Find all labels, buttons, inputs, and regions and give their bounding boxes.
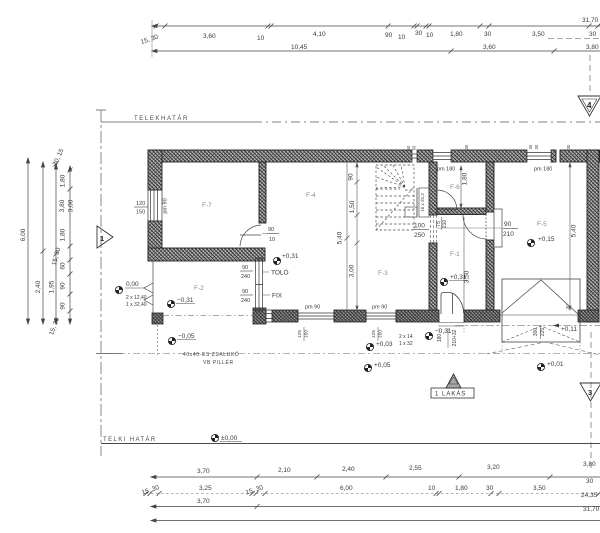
svg-text:1,80: 1,80 <box>60 228 67 241</box>
svg-text:240: 240 <box>241 298 250 304</box>
svg-text:90: 90 <box>348 173 355 181</box>
svg-text:30: 30 <box>484 31 492 38</box>
svg-text:TELEKHATÁR: TELEKHATÁR <box>134 115 189 122</box>
svg-text:±0,00: ±0,00 <box>221 435 238 442</box>
svg-text:1,50: 1,50 <box>349 200 356 213</box>
svg-text:90: 90 <box>60 302 67 310</box>
svg-text:210: 210 <box>503 231 514 238</box>
svg-text:24,35: 24,35 <box>581 492 598 499</box>
svg-text:F-3: F-3 <box>378 270 388 277</box>
svg-text:300: 300 <box>533 328 539 337</box>
svg-text:30: 30 <box>586 478 594 485</box>
svg-text:1,80: 1,80 <box>450 31 463 38</box>
svg-text:1 LAKÁS: 1 LAKÁS <box>435 391 466 398</box>
svg-text:10,45: 10,45 <box>291 44 308 51</box>
svg-text:+0,05: +0,05 <box>374 362 391 369</box>
svg-text:16 x 25,3: 16 x 25,3 <box>420 193 425 212</box>
svg-text:120: 120 <box>136 201 145 207</box>
svg-text:100: 100 <box>414 223 425 230</box>
svg-text:pm 180: pm 180 <box>534 167 552 173</box>
svg-text:125: 125 <box>297 330 303 338</box>
svg-text:2 x 12,40: 2 x 12,40 <box>126 295 147 301</box>
svg-text:4,10: 4,10 <box>313 31 326 38</box>
svg-text:FIX: FIX <box>272 293 283 300</box>
svg-text:90: 90 <box>268 227 274 233</box>
svg-text:VB PILLÉR: VB PILLÉR <box>203 359 234 366</box>
svg-text:6,00: 6,00 <box>340 485 353 492</box>
svg-text:10: 10 <box>269 237 275 243</box>
svg-text:pm 90: pm 90 <box>163 198 169 213</box>
svg-text:F-4: F-4 <box>306 192 316 199</box>
svg-text:1 x 32,40: 1 x 32,40 <box>126 302 147 308</box>
svg-text:40x40-ES ZSALUKŐ: 40x40-ES ZSALUKŐ <box>183 351 239 358</box>
svg-text:90: 90 <box>385 32 393 39</box>
svg-text:3,80: 3,80 <box>583 461 596 468</box>
svg-text:−0,31: −0,31 <box>177 297 194 304</box>
svg-text:10: 10 <box>426 32 434 39</box>
svg-text:+0,31: +0,31 <box>282 253 299 260</box>
svg-text:2,40: 2,40 <box>342 466 355 473</box>
svg-text:10: 10 <box>398 34 406 41</box>
svg-text:1,80: 1,80 <box>60 174 67 187</box>
svg-text:30: 30 <box>566 144 571 149</box>
svg-text:6,00: 6,00 <box>20 228 27 241</box>
svg-text:1 x 32: 1 x 32 <box>399 341 413 347</box>
svg-text:10: 10 <box>257 35 265 42</box>
svg-text:5,40: 5,40 <box>571 224 578 237</box>
svg-text:1: 1 <box>100 234 104 243</box>
svg-text:pm 90: pm 90 <box>305 305 320 311</box>
svg-text:−0,31: −0,31 <box>435 328 452 335</box>
svg-text:−0,05: −0,05 <box>178 333 195 340</box>
svg-text:3,70: 3,70 <box>197 468 210 475</box>
svg-text:TELKI HATÁR: TELKI HATÁR <box>103 436 157 443</box>
svg-text:+0,11: +0,11 <box>561 326 577 333</box>
svg-text:3,60: 3,60 <box>483 44 496 51</box>
svg-text:2,40: 2,40 <box>35 280 42 293</box>
svg-text:3,00: 3,00 <box>349 264 356 277</box>
svg-text:3,80: 3,80 <box>586 44 599 51</box>
svg-text:+0,03: +0,03 <box>376 341 393 348</box>
svg-text:5,40: 5,40 <box>337 231 344 244</box>
svg-text:30: 30 <box>415 30 423 37</box>
svg-text:225: 225 <box>540 328 546 337</box>
svg-text:125: 125 <box>371 330 377 338</box>
svg-text:240: 240 <box>241 274 250 280</box>
svg-text:F-1: F-1 <box>450 251 460 258</box>
svg-text:F-6: F-6 <box>450 184 460 191</box>
svg-text:3,70: 3,70 <box>197 498 210 505</box>
svg-text:150: 150 <box>304 330 310 338</box>
svg-text:30: 30 <box>534 144 539 149</box>
svg-text:90: 90 <box>242 265 248 271</box>
svg-text:F-5: F-5 <box>537 221 547 228</box>
svg-text:60: 60 <box>412 145 417 150</box>
svg-text:90: 90 <box>242 289 248 295</box>
svg-text:4: 4 <box>587 101 592 110</box>
svg-text:31,70: 31,70 <box>583 506 600 513</box>
svg-text:90: 90 <box>504 221 512 228</box>
svg-text:F-2: F-2 <box>194 285 204 292</box>
svg-text:+0,31: +0,31 <box>450 274 467 281</box>
svg-text:30: 30 <box>528 144 533 149</box>
svg-text:2 x 14: 2 x 14 <box>399 334 413 340</box>
svg-text:31,70: 31,70 <box>582 17 599 24</box>
svg-text:3,00: 3,00 <box>68 199 75 212</box>
svg-text:210+32: 210+32 <box>452 329 458 346</box>
svg-text:60: 60 <box>406 145 411 150</box>
svg-text:1,80: 1,80 <box>462 172 469 185</box>
svg-text:3: 3 <box>588 388 592 397</box>
svg-text:30: 30 <box>464 144 469 149</box>
svg-text:250: 250 <box>414 232 425 239</box>
svg-text:2,55: 2,55 <box>409 465 422 472</box>
svg-text:+0,01: +0,01 <box>547 361 564 368</box>
svg-text:210: 210 <box>442 220 448 229</box>
svg-text:90: 90 <box>60 282 67 290</box>
svg-text:F-7: F-7 <box>202 202 212 209</box>
svg-text:3,20: 3,20 <box>487 464 500 471</box>
svg-text:10: 10 <box>428 485 436 492</box>
svg-text:3,50: 3,50 <box>533 485 546 492</box>
svg-text:pm 180: pm 180 <box>437 167 455 173</box>
svg-text:3,25: 3,25 <box>199 485 212 492</box>
svg-text:30: 30 <box>589 31 597 38</box>
svg-text:150: 150 <box>378 330 384 338</box>
svg-text:150: 150 <box>136 210 145 216</box>
svg-text:2,10: 2,10 <box>278 467 291 474</box>
svg-text:60: 60 <box>60 262 67 270</box>
svg-text:3,50: 3,50 <box>532 31 545 38</box>
svg-text:+0,15: +0,15 <box>538 236 555 243</box>
svg-text:3,60: 3,60 <box>203 33 216 40</box>
svg-text:0,00: 0,00 <box>126 281 139 288</box>
svg-text:3,80: 3,80 <box>59 199 66 212</box>
svg-text:1,95: 1,95 <box>49 280 56 293</box>
svg-text:pm 90: pm 90 <box>372 305 387 311</box>
svg-text:TOLÓ: TOLÓ <box>271 268 289 277</box>
svg-text:30: 30 <box>486 485 494 492</box>
svg-text:1,80: 1,80 <box>455 485 468 492</box>
